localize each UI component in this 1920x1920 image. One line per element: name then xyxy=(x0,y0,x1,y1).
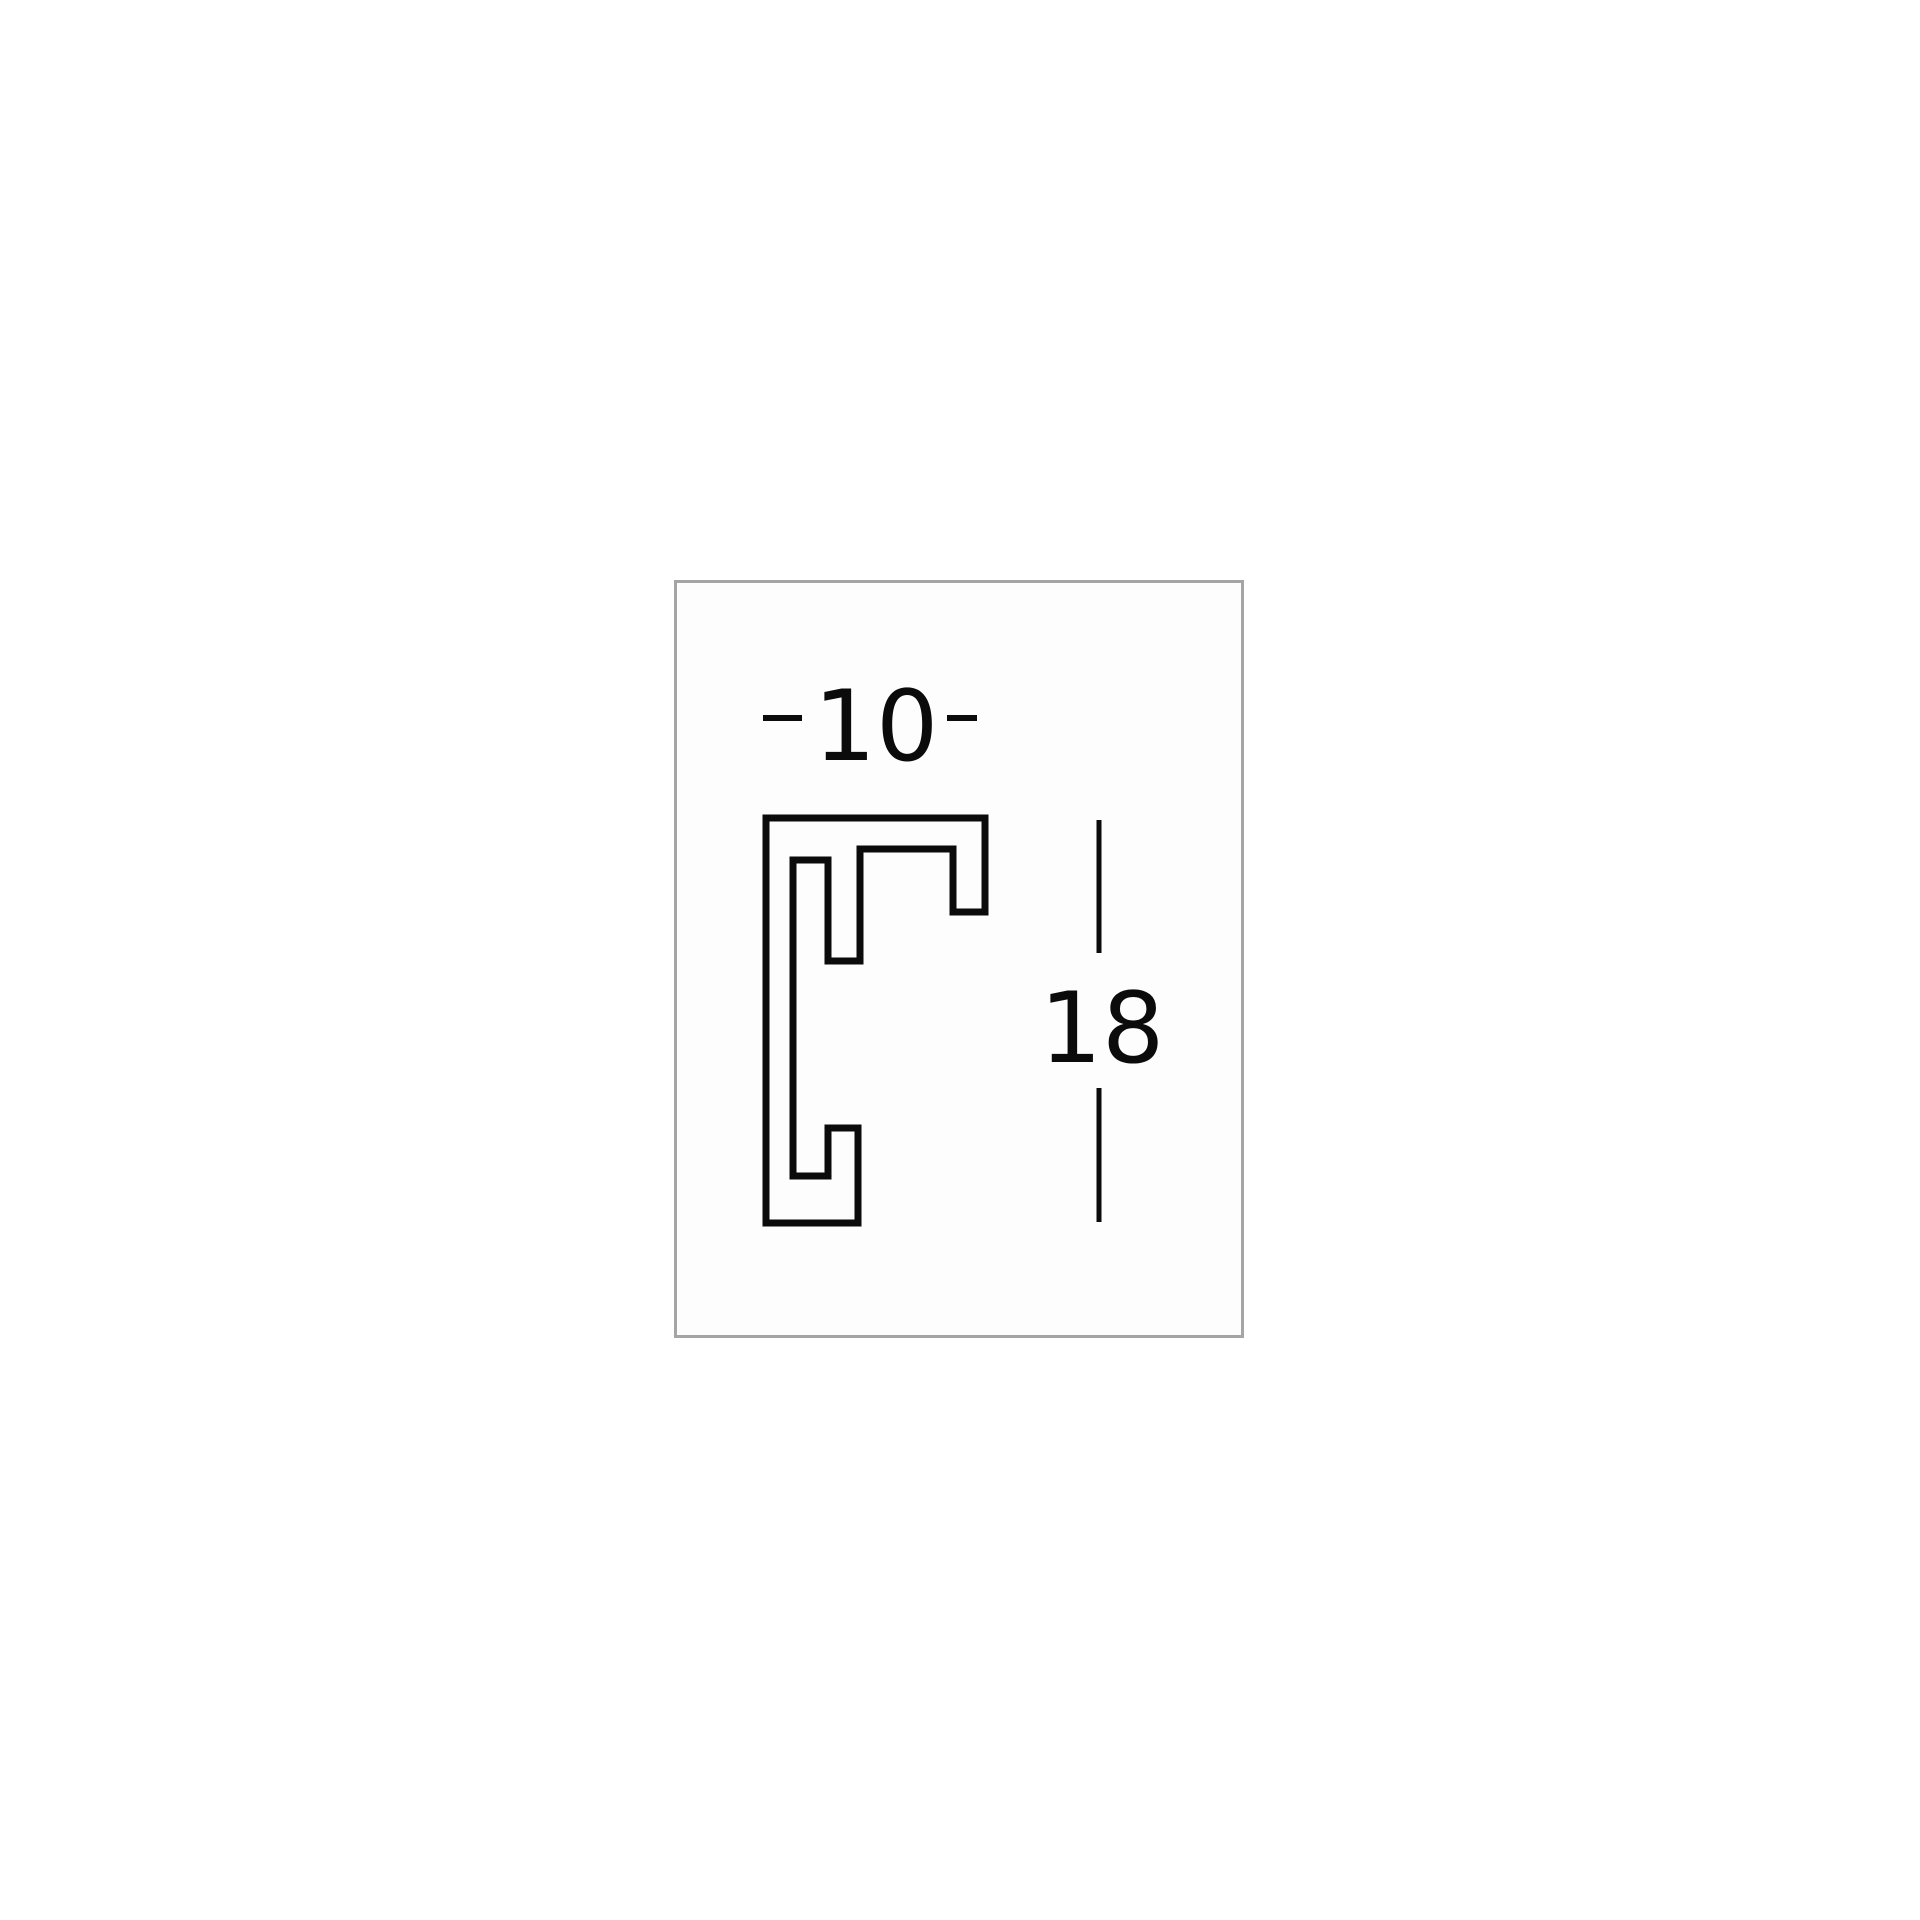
moulding-profile-outline xyxy=(766,818,985,1223)
diagram-panel: 10 18 xyxy=(674,580,1244,1338)
page-background: 10 18 xyxy=(0,0,1920,1920)
profile-drawing: 10 18 xyxy=(677,583,1241,1335)
width-dim-label: 10 xyxy=(814,670,939,784)
height-dim-label: 18 xyxy=(1040,972,1165,1086)
